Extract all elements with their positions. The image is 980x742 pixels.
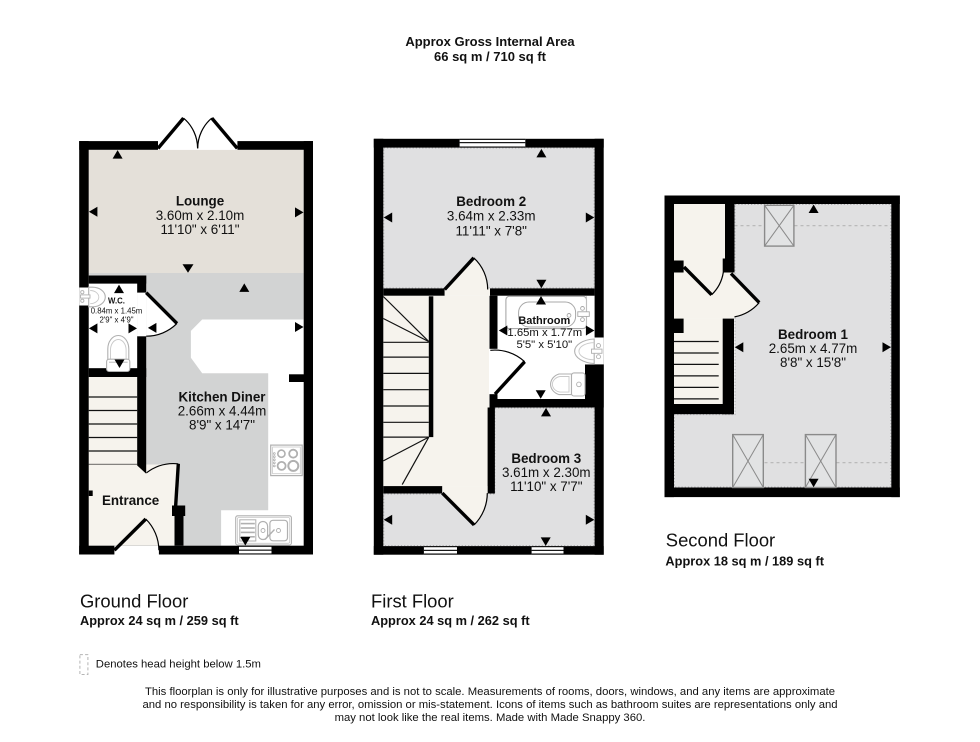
svg-text:Approx 24 sq m / 262 sq ft: Approx 24 sq m / 262 sq ft [371, 613, 530, 628]
svg-text:11'11" x 7'8": 11'11" x 7'8" [455, 223, 527, 238]
svg-text:1.65m x 1.77m: 1.65m x 1.77m [507, 327, 582, 339]
svg-text:Second Floor: Second Floor [666, 529, 775, 550]
svg-text:Bathroom: Bathroom [518, 315, 570, 327]
svg-text:Approx Gross Internal Area: Approx Gross Internal Area [405, 34, 575, 49]
svg-text:66 sq m / 710 sq ft: 66 sq m / 710 sq ft [434, 49, 547, 64]
svg-text:Bedroom 2: Bedroom 2 [456, 194, 526, 209]
svg-text:2.66m x 4.44m: 2.66m x 4.44m [178, 404, 267, 419]
svg-text:11'10" x 7'7": 11'10" x 7'7" [510, 479, 583, 494]
svg-text:3.64m x 2.33m: 3.64m x 2.33m [447, 209, 536, 224]
svg-text:8'9" x 14'7": 8'9" x 14'7" [189, 418, 255, 433]
svg-text:Approx 24 sq m / 259 sq ft: Approx 24 sq m / 259 sq ft [80, 613, 239, 628]
svg-text:Lounge: Lounge [176, 194, 224, 209]
svg-text:3.60m x 2.10m: 3.60m x 2.10m [156, 208, 245, 223]
svg-text:2.65m x 4.77m: 2.65m x 4.77m [769, 341, 858, 356]
svg-text:may not look like the real ite: may not look like the real items. Made w… [335, 712, 646, 724]
svg-text:2'9" x 4'9": 2'9" x 4'9" [99, 315, 133, 324]
svg-text:3.61m x 2.30m: 3.61m x 2.30m [502, 465, 591, 480]
svg-text:Bedroom 3: Bedroom 3 [511, 451, 581, 466]
svg-text:11'10" x 6'11": 11'10" x 6'11" [161, 222, 240, 237]
svg-text:W.C.: W.C. [108, 296, 125, 305]
svg-text:First Floor: First Floor [371, 591, 454, 612]
svg-text:Entrance: Entrance [102, 493, 159, 508]
svg-text:Denotes head height below 1.5m: Denotes head height below 1.5m [96, 658, 261, 670]
svg-text:8'8" x 15'8": 8'8" x 15'8" [780, 355, 846, 370]
svg-text:Kitchen Diner: Kitchen Diner [178, 390, 266, 405]
svg-text:Bedroom 1: Bedroom 1 [778, 327, 848, 342]
svg-text:0.84m x 1.45m: 0.84m x 1.45m [91, 306, 143, 315]
svg-text:Approx 18 sq m / 189 sq ft: Approx 18 sq m / 189 sq ft [665, 553, 824, 568]
svg-text:Ground Floor: Ground Floor [80, 591, 188, 612]
svg-text:This floorplan is only for ill: This floorplan is only for illustrative … [145, 686, 835, 698]
svg-text:and no responsibility is taken: and no responsibility is taken for any e… [142, 699, 837, 711]
svg-text:5'5" x 5'10": 5'5" x 5'10" [516, 339, 572, 351]
